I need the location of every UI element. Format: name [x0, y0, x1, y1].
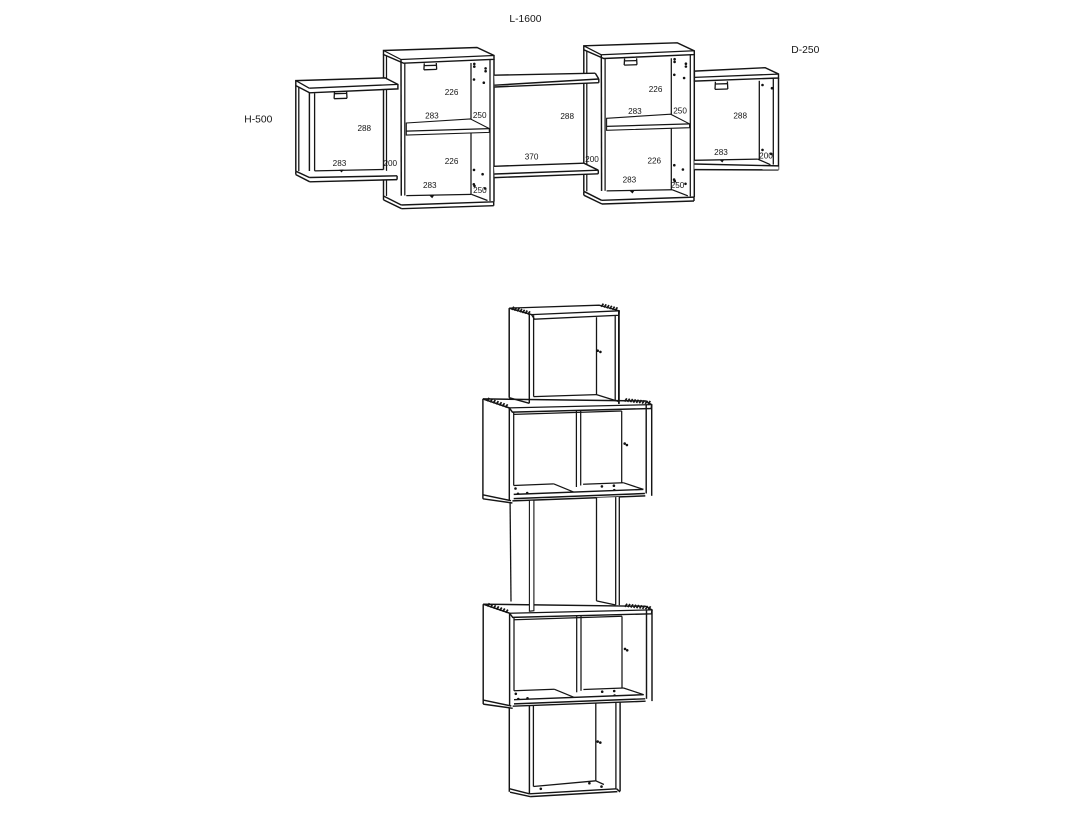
svg-text:250: 250: [473, 186, 487, 195]
svg-text:283: 283: [628, 107, 642, 116]
svg-text:283: 283: [333, 159, 347, 168]
svg-text:250: 250: [473, 111, 487, 120]
svg-text:226: 226: [647, 157, 661, 166]
svg-text:226: 226: [445, 157, 459, 166]
svg-text:370: 370: [525, 152, 539, 161]
svg-text:283: 283: [714, 148, 728, 157]
svg-text:226: 226: [445, 88, 459, 97]
svg-text:250: 250: [671, 181, 685, 190]
svg-text:200: 200: [759, 152, 773, 161]
svg-text:H-500: H-500: [244, 115, 272, 126]
svg-text:D-250: D-250: [791, 45, 819, 56]
svg-text:L-1600: L-1600: [509, 14, 541, 25]
svg-text:288: 288: [560, 112, 574, 121]
svg-text:226: 226: [649, 85, 663, 94]
svg-text:288: 288: [733, 112, 747, 121]
svg-text:200: 200: [585, 155, 599, 164]
svg-text:283: 283: [423, 181, 437, 190]
svg-text:283: 283: [623, 176, 637, 185]
svg-text:250: 250: [673, 106, 687, 115]
svg-text:283: 283: [425, 112, 439, 121]
svg-text:200: 200: [383, 159, 397, 168]
svg-text:288: 288: [357, 124, 371, 133]
